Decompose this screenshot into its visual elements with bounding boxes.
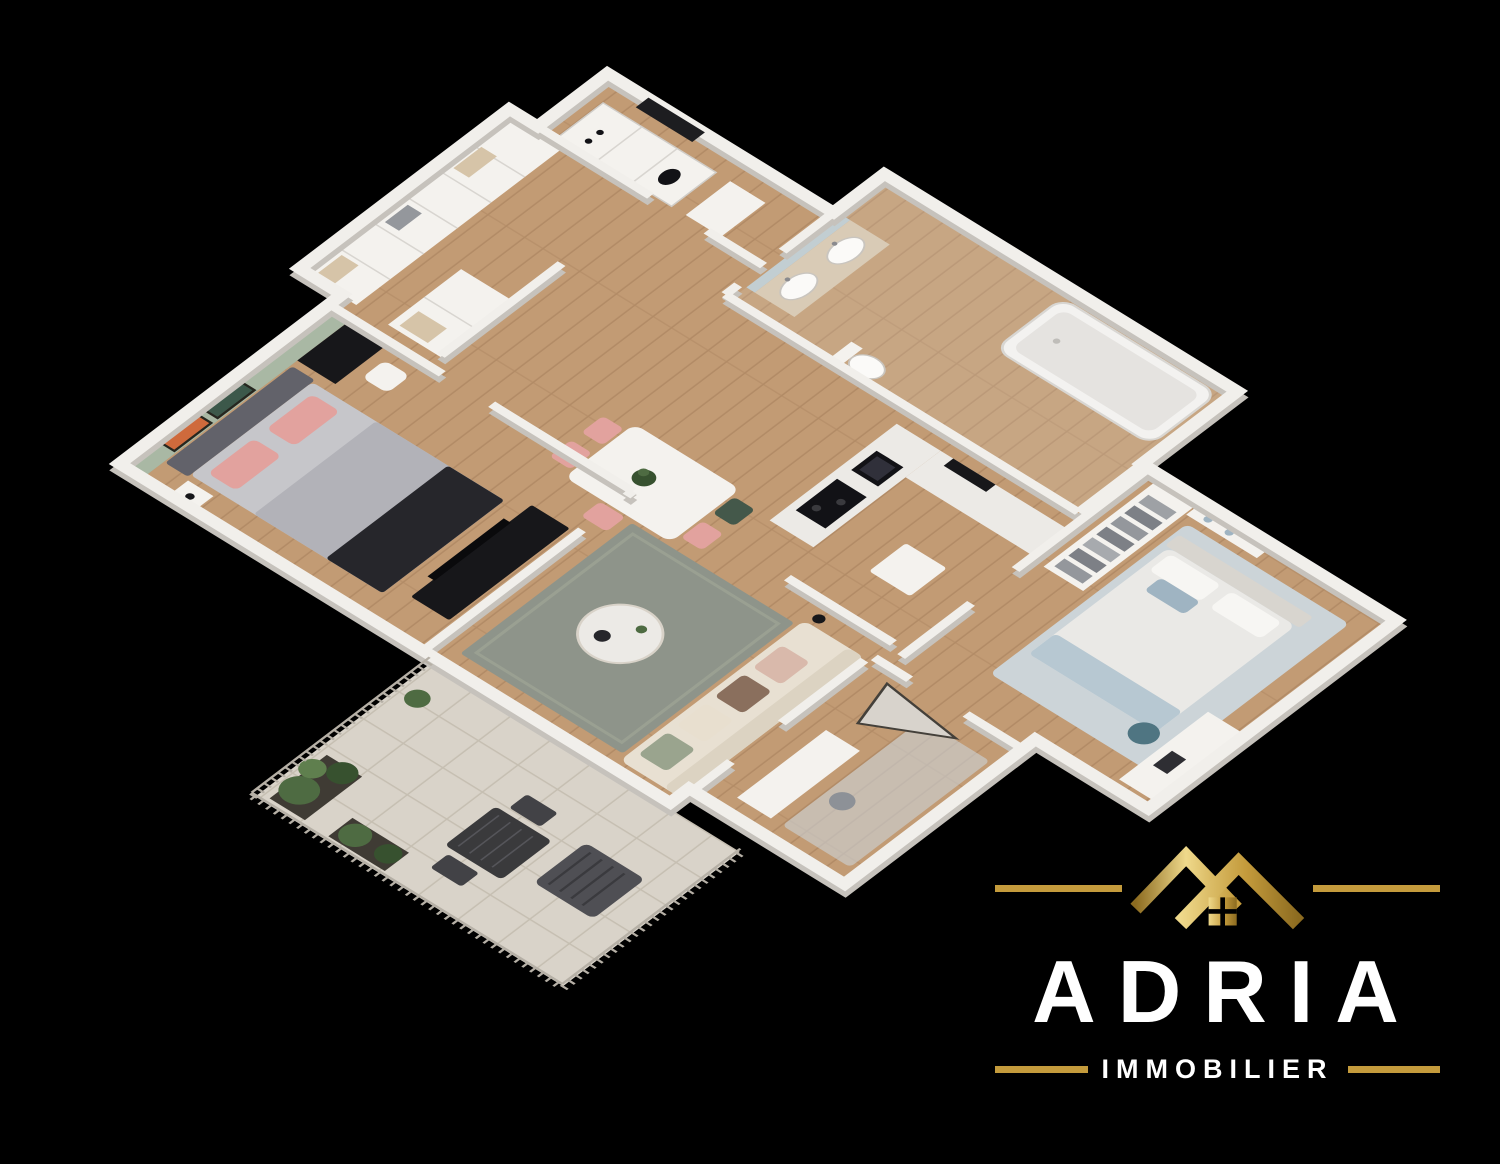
logo-roof-row bbox=[995, 836, 1440, 940]
logo-brand: ADRIA bbox=[995, 948, 1440, 1036]
gold-rule-left bbox=[995, 885, 1122, 892]
gold-rule-right bbox=[1313, 885, 1440, 892]
scene: ADRIA IMMOBILIER bbox=[0, 0, 1500, 1164]
gold-double-roof-house-icon bbox=[1128, 836, 1306, 940]
gold-rule-tagline-right bbox=[1348, 1066, 1441, 1073]
gold-rule-tagline-left bbox=[995, 1066, 1088, 1073]
logo-tagline-row: IMMOBILIER bbox=[995, 1056, 1440, 1083]
logo-tagline: IMMOBILIER bbox=[1088, 1056, 1348, 1083]
adria-logo: ADRIA IMMOBILIER bbox=[995, 836, 1440, 1083]
